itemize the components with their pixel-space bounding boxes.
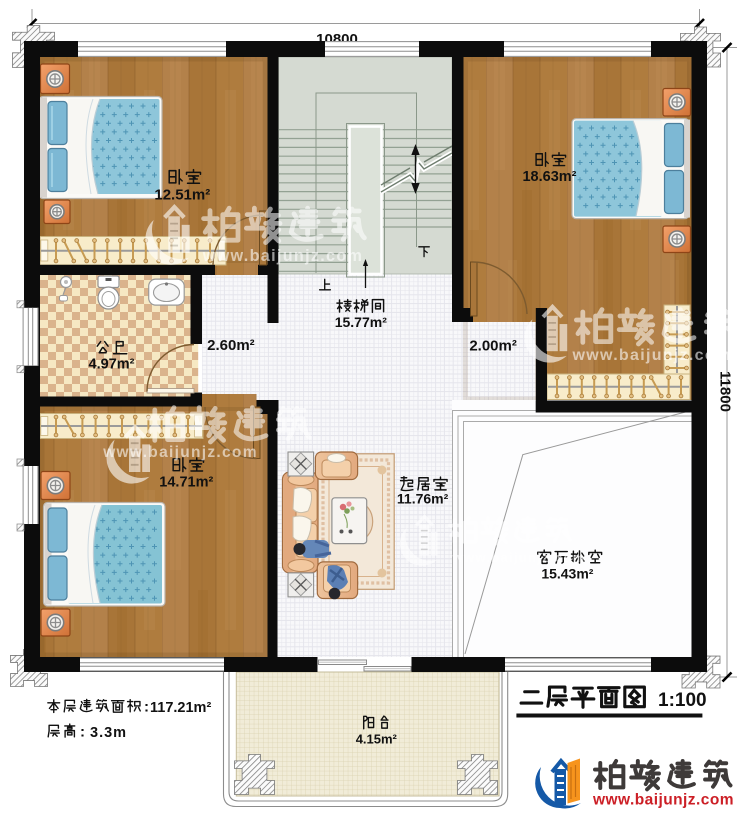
svg-text::: : bbox=[144, 699, 149, 716]
svg-text:117.21m²: 117.21m² bbox=[150, 700, 211, 716]
svg-text:12.51m²: 12.51m² bbox=[154, 187, 210, 204]
svg-text:15.77m²: 15.77m² bbox=[335, 314, 387, 330]
svg-text:1:100: 1:100 bbox=[658, 690, 707, 711]
svg-text:www.baijunjz.com: www.baijunjz.com bbox=[202, 247, 364, 265]
svg-text:15.43m²: 15.43m² bbox=[541, 566, 593, 582]
svg-text:2.00m²: 2.00m² bbox=[469, 338, 517, 355]
svg-text:14.71m²: 14.71m² bbox=[159, 475, 213, 491]
svg-text:www.baijunjz.com: www.baijunjz.com bbox=[452, 550, 586, 565]
svg-text:2.60m²: 2.60m² bbox=[207, 337, 255, 354]
svg-text::: : bbox=[80, 724, 85, 741]
svg-text:www.baijunjz.com: www.baijunjz.com bbox=[592, 792, 734, 809]
svg-text:11800: 11800 bbox=[717, 371, 734, 412]
svg-text:18.63m²: 18.63m² bbox=[522, 169, 576, 185]
svg-text:4.15m²: 4.15m² bbox=[356, 732, 398, 747]
svg-text:www.baijunjz.com: www.baijunjz.com bbox=[572, 347, 732, 364]
svg-text:www.baijunjz.com: www.baijunjz.com bbox=[102, 444, 258, 461]
svg-text:11.76m²: 11.76m² bbox=[397, 491, 449, 507]
svg-text:4.97m²: 4.97m² bbox=[89, 357, 135, 373]
svg-text:3.3m: 3.3m bbox=[90, 725, 127, 741]
